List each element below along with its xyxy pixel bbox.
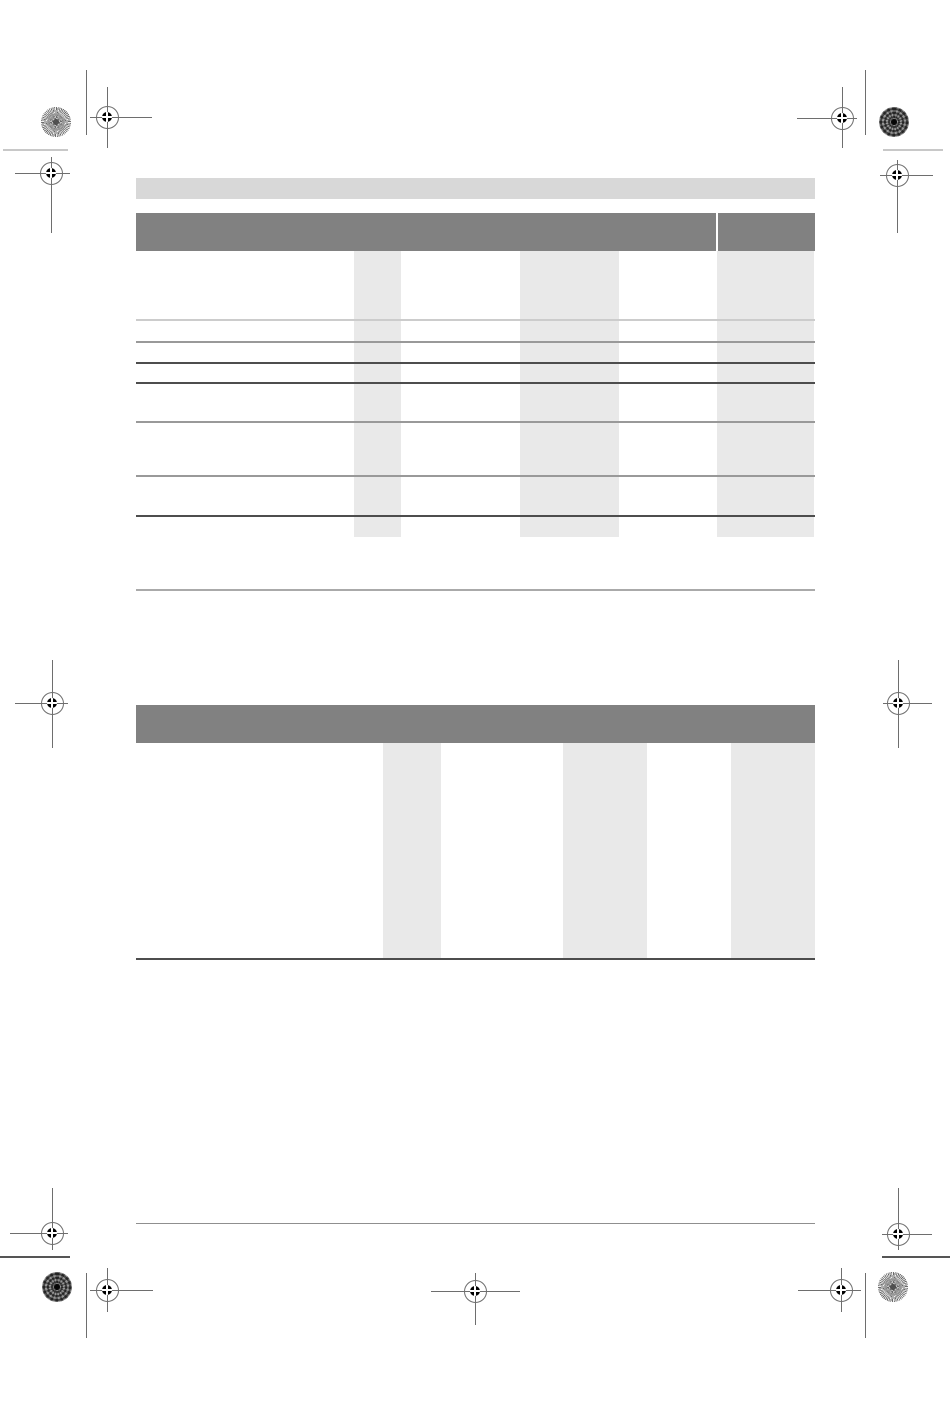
crop-mark-line — [0, 1256, 70, 1258]
row-separator — [136, 319, 815, 321]
color-control-patch-icon — [878, 1272, 908, 1302]
shaded-column-band — [354, 251, 401, 537]
footer-rule — [136, 1223, 815, 1224]
section-divider-rule — [136, 589, 815, 591]
crop-mark-line — [3, 149, 68, 151]
row-separator — [136, 341, 815, 343]
shaded-column-band — [717, 251, 814, 537]
row-separator — [136, 515, 815, 517]
color-control-patch-icon — [42, 1272, 72, 1302]
lower-table-header-bar — [136, 705, 815, 743]
color-control-patch-icon — [41, 107, 71, 137]
upper-table-header-bar — [136, 213, 815, 251]
shaded-column-band — [563, 743, 647, 959]
shaded-column-band — [520, 251, 619, 537]
lower-table-bottom-rule — [136, 958, 815, 960]
row-separator — [136, 475, 815, 477]
row-separator — [136, 421, 815, 423]
shaded-column-band — [731, 743, 815, 959]
crop-mark-line — [883, 149, 943, 151]
crop-mark-line — [86, 70, 87, 135]
crop-mark-line — [882, 1256, 950, 1258]
row-separator — [136, 362, 815, 364]
color-control-patch-icon — [879, 107, 909, 137]
crop-mark-line — [865, 70, 866, 135]
printed-page — [0, 0, 950, 1409]
crop-mark-line — [86, 1273, 87, 1338]
crop-mark-line — [865, 1273, 866, 1338]
page-top-bar — [136, 178, 815, 199]
upper-table-header-divider — [716, 213, 718, 251]
row-separator — [136, 382, 815, 384]
shaded-column-band — [383, 743, 441, 959]
